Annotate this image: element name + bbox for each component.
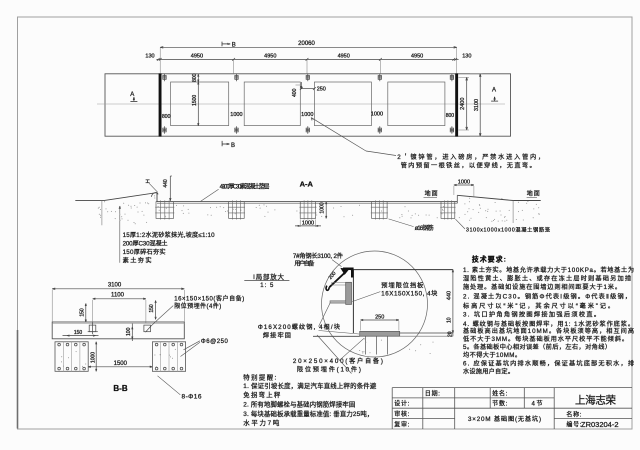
svg-text:3100: 3100: [108, 283, 122, 289]
svg-text:Ⅰ局部放大: Ⅰ局部放大: [253, 272, 285, 281]
svg-text:1000: 1000: [230, 112, 242, 118]
svg-text:姓名:: 姓名:: [492, 389, 507, 397]
svg-text:B: B: [231, 143, 235, 149]
svg-text:440: 440: [446, 291, 452, 300]
svg-text:1000: 1000: [301, 112, 313, 118]
svg-text:名称:: 名称:: [566, 410, 581, 418]
svg-text:施处理。基础如设施在围墙边则相间距要大于1米。: 施处理。基础如设施在围墙边则相间距要大于1米。: [463, 283, 621, 291]
svg-text:6. 应保证基坑内排水顺畅，保证基坑底部无积水，排: 6. 应保证基坑内排水顺畅，保证基坑底部无积水，排: [463, 360, 634, 368]
svg-text:1000: 1000: [320, 202, 326, 213]
svg-text:20: 20: [448, 331, 454, 337]
svg-text:地面: 地面: [425, 190, 438, 198]
svg-text:400: 400: [292, 88, 298, 97]
svg-text:4节: 4节: [532, 400, 543, 408]
svg-text:1000: 1000: [302, 220, 314, 226]
svg-text:1000: 1000: [91, 352, 97, 363]
svg-text:限位预埋件(10件): 限位预埋件(10件): [297, 365, 361, 373]
svg-text:设计:: 设计:: [394, 400, 409, 408]
svg-text:200厚C30混凝土: 200厚C30混凝土: [123, 239, 168, 247]
svg-text:150: 150: [149, 304, 155, 313]
svg-text:基础板高出基坑地面10MM。各块板须等高，相互间高: 基础板高出基坑地面10MM。各块板须等高，相互间高: [463, 327, 634, 335]
svg-text:16X150X150, 4块: 16X150X150, 4块: [381, 290, 437, 298]
svg-text:7#角钢长3100, 2件: 7#角钢长3100, 2件: [293, 252, 343, 260]
svg-text:3×20M 基础图(无基坑): 3×20M 基础图(无基坑): [468, 415, 541, 423]
svg-text:A: A: [130, 92, 134, 98]
svg-text:1000: 1000: [371, 112, 383, 118]
svg-text:复审:: 复审:: [394, 420, 409, 428]
svg-text:节数:: 节数:: [492, 400, 507, 408]
svg-text:15厚1:2水泥砂浆抹光,坡度≤1:10: 15厚1:2水泥砂浆抹光,坡度≤1:10: [123, 231, 216, 239]
svg-text:上海志荣: 上海志荣: [575, 394, 617, 407]
svg-text:440: 440: [163, 179, 169, 188]
svg-text:湿陷性黄土、膨胀土、或存在冻土层时则基础另加措: 湿陷性黄土、膨胀土、或存在冻土层时则基础另加措: [463, 275, 631, 283]
svg-text:2. 混凝土为C30。钢筋Φ代表Ⅰ级钢。Φ代表Ⅱ级钢，: 2. 混凝土为C30。钢筋Φ代表Ⅰ级钢。Φ代表Ⅱ级钢，: [463, 293, 631, 301]
svg-text:水平力7吨: 水平力7吨: [243, 418, 280, 427]
svg-text:预埋限位挡板: 预埋限位挡板: [381, 282, 423, 290]
svg-text:10: 10: [446, 317, 452, 323]
svg-text:3. 坑口护角角钢按图焊接加强后须校直。: 3. 坑口护角角钢按图焊接加强后须校直。: [463, 311, 600, 319]
svg-text:800: 800: [446, 113, 455, 119]
svg-text:800: 800: [162, 114, 171, 120]
svg-text:130: 130: [145, 53, 154, 59]
svg-text:1. 保证引坡长度，满足汽车直线上秤的条件避: 1. 保证引坡长度，满足汽车直线上秤的条件避: [243, 381, 377, 390]
svg-text:B: B: [232, 42, 236, 48]
svg-text:150: 150: [74, 330, 83, 336]
svg-text:800: 800: [192, 73, 198, 82]
svg-text:4950: 4950: [191, 53, 203, 59]
svg-text:1: 5: 1: 5: [260, 283, 274, 289]
svg-text:4950: 4950: [338, 53, 350, 59]
svg-text:审核:: 审核:: [394, 410, 409, 418]
svg-text:1. 素土夯实。地基允许承载力大于100KPa。若地基土为: 1. 素土夯实。地基允许承载力大于100KPa。若地基土为: [463, 266, 634, 274]
svg-text:2400: 2400: [460, 98, 466, 110]
svg-text:低不大于3MM。每块基础板用水平尺校平不能倾斜。: 低不大于3MM。每块基础板用水平尺校平不能倾斜。: [463, 335, 628, 343]
svg-text:Φ16X200螺纹钢, 4根/块: Φ16X200螺纹钢, 4根/块: [258, 323, 340, 331]
svg-text:Φ6@250: Φ6@250: [201, 339, 229, 345]
svg-text:4-100厚C30素混凝土垫层: 4-100厚C30素混凝土垫层: [220, 182, 270, 190]
svg-text:3100x1000x1000混凝土钢筋笼: 3100x1000x1000混凝土钢筋笼: [466, 226, 550, 234]
svg-text:250: 250: [317, 87, 326, 93]
svg-text:1000: 1000: [458, 179, 470, 185]
svg-text:8-Φ16: 8-Φ16: [182, 394, 202, 401]
svg-text:3. 每块基础板承载重量标准值: 垂直力25吨，: 3. 每块基础板承载重量标准值: 垂直力25吨，: [243, 409, 373, 418]
svg-text:A-A: A-A: [300, 180, 314, 189]
svg-text:A: A: [492, 88, 496, 94]
svg-text:5。各基础板中心相对误差（前后，左右，对角线）: 5。各基础板中心相对误差（前后，左右，对角线）: [463, 343, 611, 351]
svg-text:技术要求:: 技术要求:: [472, 255, 506, 264]
svg-text:特别提醒:: 特别提醒:: [243, 373, 276, 382]
svg-text:4. 螺纹钢与基础板按图焊牢，用1: 1水泥砂浆作底浆。: 4. 螺纹钢与基础板按图焊牢，用1: 1水泥砂浆作底浆。: [463, 320, 634, 328]
svg-text:2＇镀锌管，进入磅房，严禁水进入管内，: 2＇镀锌管，进入磅房，严禁水进入管内，: [397, 153, 544, 161]
svg-text:1500: 1500: [192, 95, 198, 106]
svg-text:4950: 4950: [264, 53, 276, 59]
svg-text:2. 所有地脚螺栓与基础内钢筋焊接牢固: 2. 所有地脚螺栓与基础内钢筋焊接牢固: [243, 400, 355, 409]
svg-text:水设施用户自定。: 水设施用户自定。: [463, 368, 514, 376]
svg-text:地面: 地面: [527, 189, 540, 197]
svg-text:免拐弯上秤: 免拐弯上秤: [243, 390, 281, 399]
svg-text:ZR03204-2: ZR03204-2: [581, 420, 619, 429]
svg-text:编号:: 编号:: [566, 421, 581, 429]
svg-text:250: 250: [375, 314, 384, 320]
svg-text:16×150×150(客户自备): 16×150×150(客户自备): [174, 294, 244, 302]
svg-text:焊接牢固: 焊接牢固: [263, 331, 291, 339]
svg-text:150厚碎石夯实: 150厚碎石夯实: [123, 248, 166, 256]
svg-text:150: 150: [79, 308, 85, 317]
svg-text:100: 100: [126, 327, 132, 336]
svg-text:B-B: B-B: [113, 384, 127, 393]
svg-text:3100: 3100: [474, 99, 480, 111]
svg-text:日期:: 日期:: [425, 389, 440, 397]
svg-text:130: 130: [462, 53, 471, 59]
svg-text:素土夯实: 素土夯实: [123, 256, 152, 264]
svg-text:限位预埋件(4件): 限位预埋件(4件): [174, 302, 221, 310]
svg-text:管内预留一根铁丝，以便穿线，无直弯。: 管内预留一根铁丝，以便穿线，无直弯。: [401, 161, 536, 169]
svg-text:20060: 20060: [298, 41, 315, 47]
svg-text:用户自备: 用户自备: [294, 260, 315, 268]
svg-text:ø16钢筋: ø16钢筋: [415, 224, 434, 232]
svg-text:均不得大于10MM。: 均不得大于10MM。: [463, 351, 521, 359]
svg-text:1100: 1100: [111, 293, 125, 299]
svg-text:1500: 1500: [114, 361, 128, 367]
svg-text:4950: 4950: [411, 53, 423, 59]
